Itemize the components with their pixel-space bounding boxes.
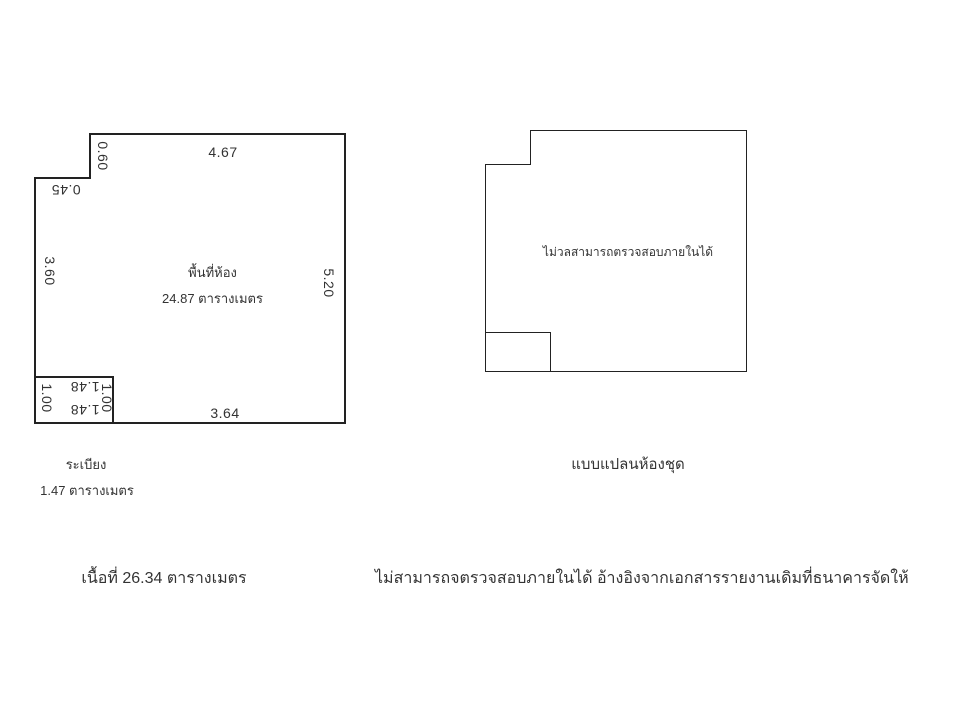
right-plan-wall-bottom — [485, 371, 747, 372]
right-plan-wall-notch-horizontal — [485, 164, 531, 165]
footer-note-text: ไม่สามารถจตรวจสอบภายในได้ อ้างอิงจากเอกส… — [375, 566, 909, 591]
total-area-text: เนื้อที่ 26.34 ตารางเมตร — [64, 566, 264, 591]
dim-right: 5.20 — [321, 263, 337, 303]
balcony-caption: ระเบียง — [36, 454, 136, 475]
dim-balcony-right: 1.00 — [99, 378, 115, 418]
right-plan-balcony-wall-right — [550, 332, 551, 372]
balcony-area-caption: 1.47 ตารางเมตร — [27, 480, 147, 501]
dim-balcony-left: 1.00 — [39, 378, 55, 418]
room-area-label-line1: พื้นที่ห้อง — [110, 260, 315, 286]
room-area-label: พื้นที่ห้อง 24.87 ตารางเมตร — [110, 260, 315, 312]
floor-plan-page: 4.67 0.60 0.45 3.60 5.20 3.64 1.48 1.48 … — [0, 0, 960, 720]
right-plan-wall-right — [746, 130, 747, 372]
right-plan-caption: แบบแปลนห้องชุด — [528, 452, 728, 476]
right-plan-note: ไม่วลสามารถตรวจสอบภายในได้ — [528, 243, 728, 262]
dim-left: 3.60 — [42, 251, 58, 291]
dim-notch-width: 0.45 — [46, 182, 86, 198]
left-plan-wall-left — [34, 177, 36, 424]
dim-notch-height: 0.60 — [95, 136, 111, 176]
dim-top: 4.67 — [203, 144, 243, 160]
right-plan-wall-top — [530, 130, 747, 131]
left-plan-wall-notch-vertical — [89, 133, 91, 179]
right-plan-balcony-wall-top — [485, 332, 551, 333]
left-plan-wall-right — [344, 133, 346, 424]
room-area-label-line2: 24.87 ตารางเมตร — [110, 286, 315, 312]
left-plan-wall-top — [89, 133, 346, 135]
left-plan-wall-bottom — [34, 422, 346, 424]
right-plan-wall-notch-vertical — [530, 130, 531, 165]
right-plan-wall-left — [485, 164, 486, 372]
dim-bottom: 3.64 — [205, 405, 245, 421]
left-plan-wall-notch-horizontal — [34, 177, 91, 179]
